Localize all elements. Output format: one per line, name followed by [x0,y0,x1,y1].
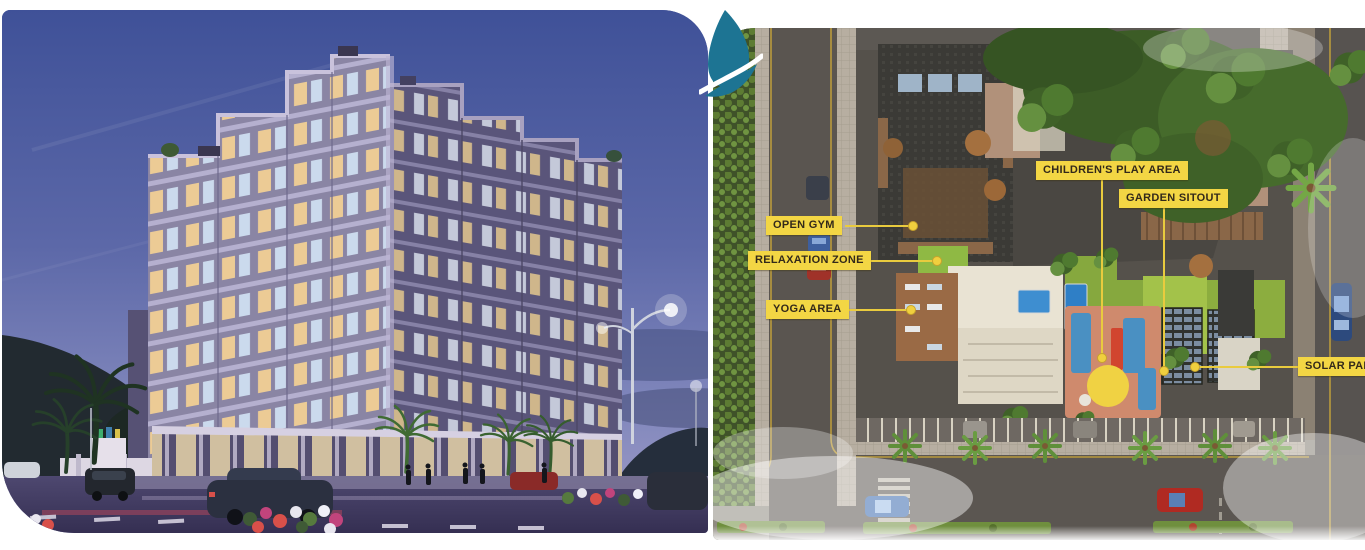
label-solar-panel: SOLAR PANEL [1298,357,1365,376]
building-render-art [2,10,708,533]
leader-line-relaxation-zone [862,260,936,262]
label-open-gym: OPEN GYM [766,216,842,235]
leader-dot-solar-panel [1190,362,1200,372]
site-plan-art [713,28,1365,540]
leader-line-garden-sitout [1163,208,1165,370]
leader-dot-childrens-play-area [1097,353,1107,363]
leader-line-open-gym [845,225,911,227]
leader-dot-open-gym [908,221,918,231]
bottom-fade [713,526,1365,540]
brochure-spread: OPEN GYM RELAXATION ZONE YOGA AREA CHILD… [0,0,1365,550]
leader-dot-relaxation-zone [932,256,942,266]
building-render-panel [2,10,708,533]
label-yoga-area: YOGA AREA [766,300,849,319]
leaf-icon [699,8,763,102]
label-childrens-play-area: CHILDREN'S PLAY AREA [1036,161,1188,180]
leader-line-yoga-area [844,309,909,311]
leader-line-solar-panel [1197,366,1298,368]
leader-dot-yoga-area [906,305,916,315]
play-area [1065,306,1161,418]
leaf-logo-icon [699,8,763,102]
leader-dot-garden-sitout [1159,366,1169,376]
yoga-deck [896,273,958,361]
label-garden-sitout: GARDEN SITOUT [1119,189,1228,208]
leader-line-childrens-play-area [1101,180,1103,356]
small-roof [1218,270,1254,336]
label-relaxation-zone: RELAXATION ZONE [748,251,871,270]
site-plan-panel: OPEN GYM RELAXATION ZONE YOGA AREA CHILD… [713,28,1365,540]
